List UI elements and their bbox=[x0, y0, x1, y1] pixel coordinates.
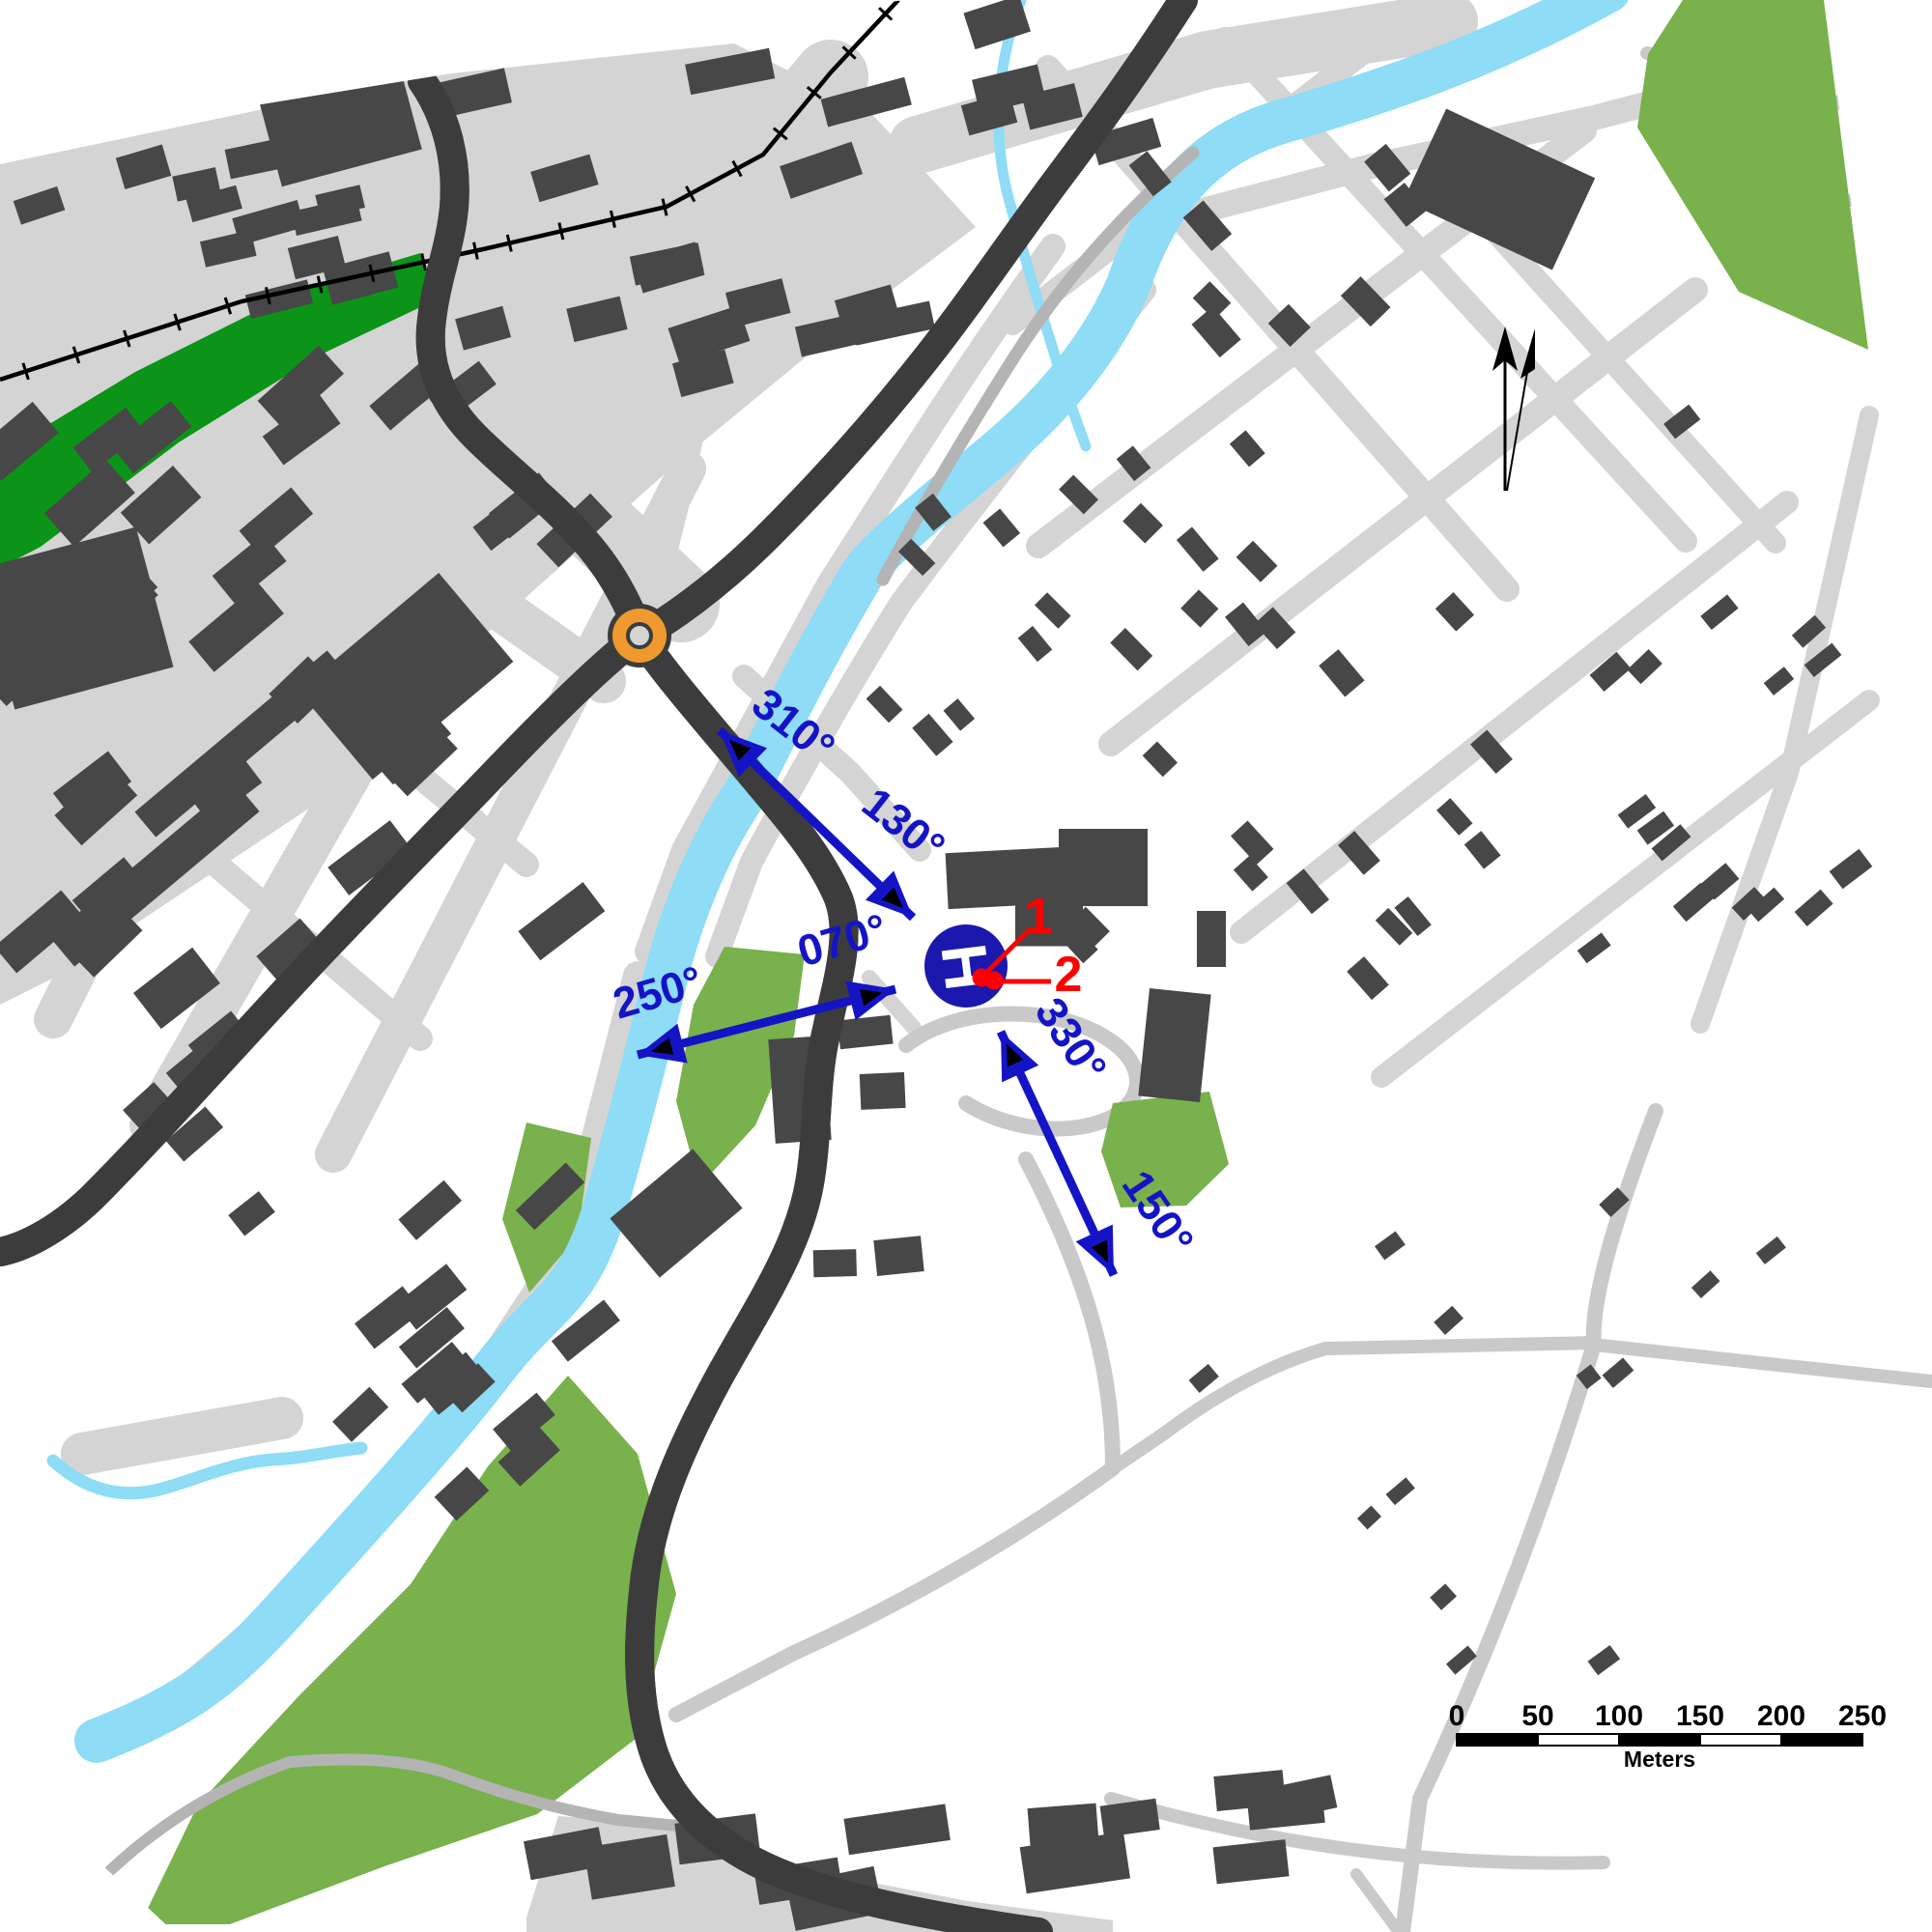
building bbox=[1028, 1804, 1100, 1858]
scale-bar-segment bbox=[1619, 1734, 1700, 1746]
scale-tick-100: 100 bbox=[1595, 1700, 1643, 1732]
marker-label-2: 2 bbox=[1055, 947, 1083, 1003]
building bbox=[813, 1249, 857, 1277]
scale-tick-150: 150 bbox=[1676, 1700, 1724, 1732]
roundabout bbox=[608, 604, 671, 668]
building bbox=[1197, 911, 1226, 967]
scale-bar-segment bbox=[1781, 1734, 1862, 1746]
scale-tick-0: 0 bbox=[1449, 1700, 1465, 1732]
building bbox=[873, 1236, 923, 1276]
building bbox=[860, 1072, 906, 1110]
scale-tick-250: 250 bbox=[1838, 1700, 1887, 1732]
scale-unit-label: Meters bbox=[1624, 1747, 1695, 1772]
building bbox=[1138, 988, 1210, 1102]
map-canvas: 310° 130° 250° 070° 330° 150° H 1 2 bbox=[0, 0, 1932, 1932]
scale-bar-segment bbox=[1538, 1734, 1619, 1746]
building bbox=[838, 1015, 894, 1050]
scale-tick-50: 50 bbox=[1521, 1700, 1553, 1732]
scale-tick-200: 200 bbox=[1757, 1700, 1805, 1732]
scale-bar-segment bbox=[1457, 1734, 1538, 1746]
building bbox=[1213, 1839, 1290, 1884]
marker-label-1: 1 bbox=[1025, 889, 1053, 945]
city-map: 310° 130° 250° 070° 330° 150° H 1 2 bbox=[0, 0, 1932, 1932]
scale-bar-segment bbox=[1700, 1734, 1781, 1746]
